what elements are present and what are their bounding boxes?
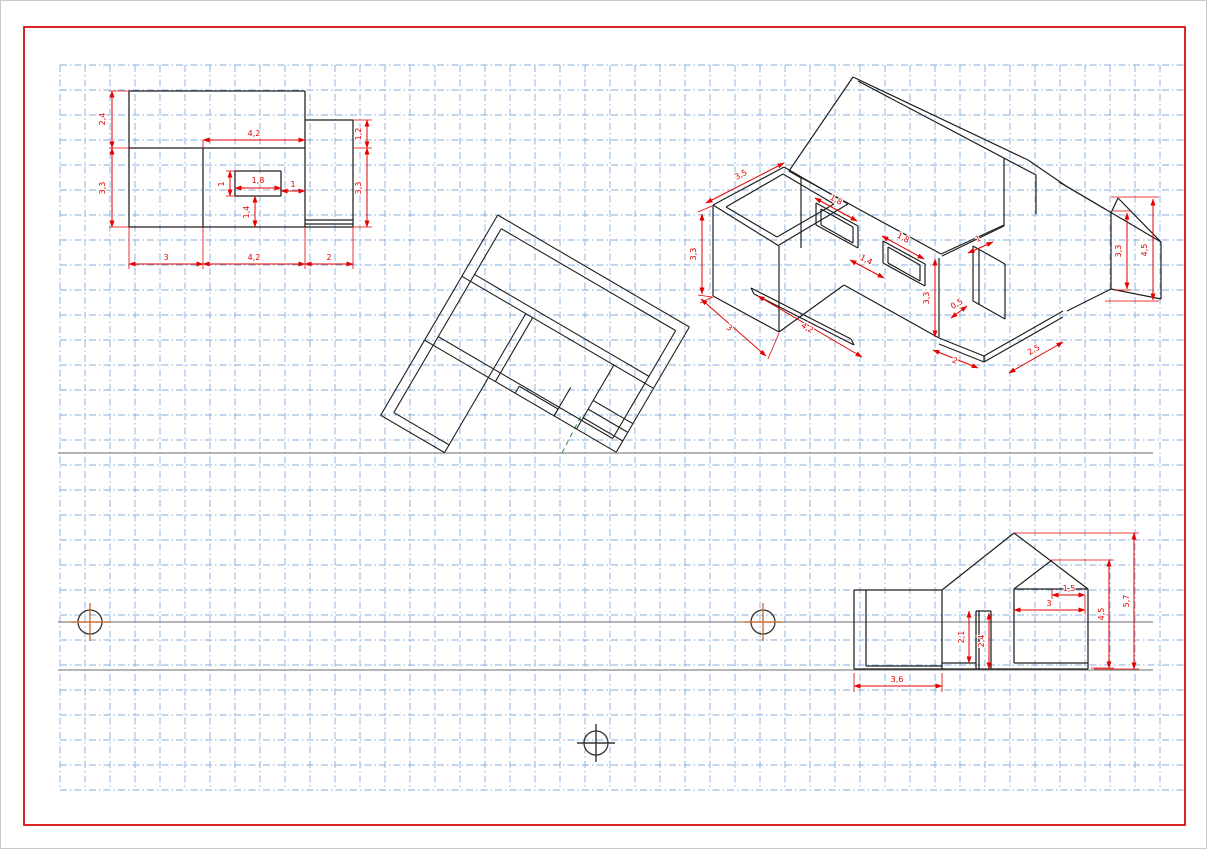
plan-outline [129,91,353,227]
dimension-label: 3,5 [733,168,748,182]
dimension-label: 3 [725,323,734,333]
dimension-label: 2,4 [977,635,986,648]
dimension-label: 1,8 [828,193,843,207]
registration-marks [71,603,782,762]
dimension-label: 4,2 [248,129,261,138]
dimension-label: 1,2 [354,128,363,141]
cad-sheet: 2,43,34,21,23,334,221,8111,43,53,331,81,… [0,0,1207,849]
dimension-label: 2,1 [957,631,966,644]
dimension-label: 3,3 [689,248,698,261]
dimension-label: 2 [951,356,959,366]
dimension-label: 4,5 [1097,608,1106,621]
elevation-dimension-lines [854,533,1134,686]
dimension-label: 1,8 [252,176,265,185]
dimension-label: 5,7 [1122,595,1131,608]
dimension-label: 3 [163,253,168,262]
sheet-frame [24,27,1185,825]
dimension-label: 3,3 [922,292,931,305]
dimension-label: 2,5 [1026,343,1042,357]
dimension-label: 0,5 [949,297,965,311]
dimension-label: 1,5 [1063,584,1076,593]
registration-mark [744,603,782,641]
view-elevation: 3,62,12,431,54,55,7 [854,533,1139,692]
dimension-label: 3 [1046,599,1051,608]
elevation-outline [854,533,1088,669]
dimension-label: 1,8 [895,231,910,245]
plan-dimension-lines [112,91,367,264]
plan-extension-lines [109,91,372,269]
dimension-label: 2 [326,253,331,262]
cad-drawing-canvas: 2,43,34,21,23,334,221,8111,43,53,331,81,… [1,1,1207,849]
registration-mark [577,724,615,762]
dimension-label: 4,5 [1140,244,1149,257]
dimension-label: 1,4 [242,206,251,219]
dimension-label: 3,6 [891,675,904,684]
dimension-label: 1 [217,181,226,186]
dimension-label: 3,3 [1114,245,1123,258]
iso-extension-lines [698,197,1159,359]
iso-outline [713,77,1161,362]
dimension-label: 3,3 [98,182,107,195]
dimension-label: 4,2 [799,321,815,335]
dimension-label: 4,2 [248,253,261,262]
grid-paper [60,65,1185,790]
dimension-label: 3,3 [354,182,363,195]
dimension-label: 2,4 [98,113,107,126]
registration-mark [71,603,109,641]
dimension-label: 1 [290,180,295,189]
